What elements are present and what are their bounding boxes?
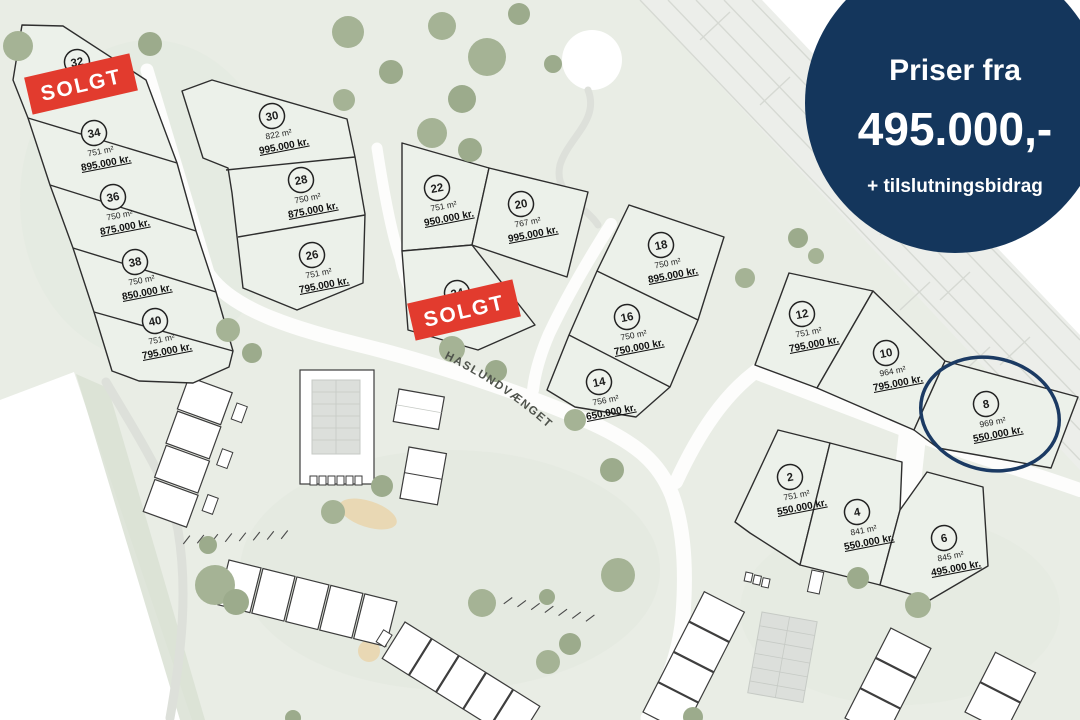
lot-number: 40 bbox=[148, 315, 163, 329]
badge-price: 495.000,- bbox=[858, 103, 1052, 155]
site-plan: 32 34 751 m² 895.000 kr. 36 750 m² 875.0… bbox=[0, 0, 1080, 720]
lot-number: 30 bbox=[265, 110, 280, 124]
lot-number: 10 bbox=[879, 347, 894, 361]
lot-number: 12 bbox=[795, 308, 810, 322]
badge-subtitle: + tilslutningsbidrag bbox=[867, 176, 1043, 197]
lot-number: 20 bbox=[514, 198, 529, 212]
lot-number: 26 bbox=[305, 249, 320, 263]
badge-title: Priser fra bbox=[889, 54, 1021, 87]
lot-number: 16 bbox=[620, 311, 635, 325]
lot-number: 22 bbox=[430, 182, 445, 196]
lot-number: 36 bbox=[106, 191, 121, 205]
parking-roof bbox=[312, 380, 360, 454]
pond bbox=[562, 30, 622, 90]
